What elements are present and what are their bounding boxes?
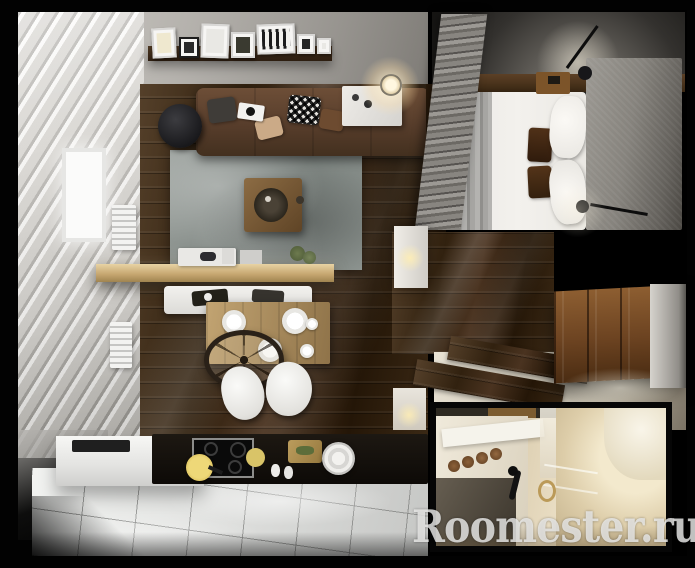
rolled-towel bbox=[462, 456, 474, 468]
candle bbox=[352, 94, 359, 101]
window bbox=[62, 148, 106, 242]
sofa-pillow-grey bbox=[206, 96, 237, 124]
apartment-render: Roomester.ru bbox=[0, 0, 695, 568]
bar-plant bbox=[303, 251, 316, 264]
nightstand-item bbox=[548, 76, 560, 84]
hall-lamp-wall bbox=[394, 226, 428, 288]
round-sink bbox=[322, 442, 355, 475]
candle bbox=[364, 100, 372, 108]
coffee-table-tray bbox=[254, 188, 288, 222]
pass-through-panel bbox=[393, 388, 426, 430]
tray-cup bbox=[265, 196, 271, 202]
yellow-board bbox=[246, 448, 265, 467]
picture-frame bbox=[200, 24, 229, 59]
bar-counter bbox=[96, 264, 334, 282]
bar-box bbox=[222, 248, 234, 264]
hall-side-wall bbox=[650, 284, 686, 388]
picture-frame bbox=[151, 27, 177, 58]
table-cup bbox=[296, 196, 304, 204]
hob-burner bbox=[204, 442, 218, 456]
towel-ring bbox=[538, 480, 556, 502]
rolled-towel bbox=[448, 460, 460, 472]
white-mills bbox=[271, 464, 280, 477]
wall-sconce-head bbox=[578, 66, 592, 80]
rolled-towel bbox=[476, 452, 488, 464]
picture-frame bbox=[179, 37, 199, 58]
hob-burner bbox=[230, 442, 246, 458]
hob-burner bbox=[228, 460, 242, 474]
picture-frame bbox=[297, 34, 315, 54]
sofa-pillow-diamond bbox=[287, 94, 322, 125]
watermark-text: Roomester.ru bbox=[412, 500, 695, 553]
bowl bbox=[306, 318, 318, 330]
tile-bottom-shade bbox=[32, 532, 432, 556]
sink-slot bbox=[72, 440, 130, 452]
radiator-upper bbox=[112, 205, 136, 250]
bar-box-grey bbox=[240, 250, 262, 264]
white-mills bbox=[284, 466, 293, 479]
radiator-lower bbox=[110, 322, 132, 368]
wall-sconce-head bbox=[576, 200, 589, 213]
picture-frame bbox=[256, 23, 295, 54]
pendant-lamp bbox=[380, 74, 402, 96]
side-table-black bbox=[158, 104, 202, 148]
bowl bbox=[300, 344, 314, 358]
bath-faucet-head bbox=[508, 466, 518, 476]
rolled-towel bbox=[490, 448, 502, 460]
board-herbs bbox=[296, 446, 314, 455]
plate bbox=[282, 308, 308, 334]
bench-tray-dot bbox=[204, 293, 212, 301]
magazine-dot bbox=[246, 107, 255, 116]
picture-frame bbox=[317, 38, 331, 54]
bar-kettle bbox=[200, 252, 216, 261]
picture-frame bbox=[231, 32, 255, 58]
